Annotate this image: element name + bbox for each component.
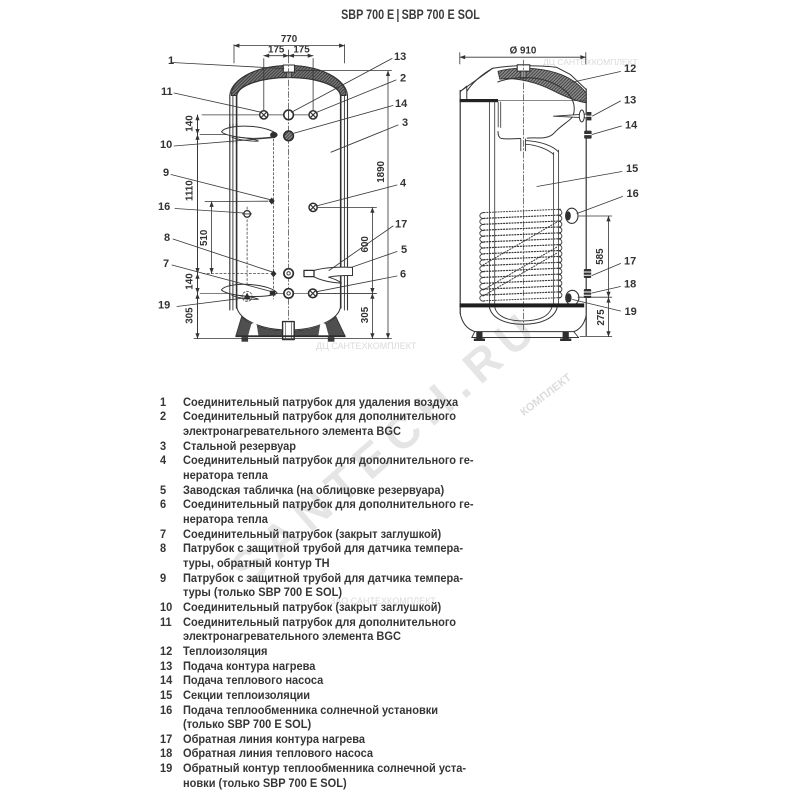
svg-text:175: 175 bbox=[268, 45, 285, 56]
svg-text:13: 13 bbox=[394, 51, 406, 63]
svg-text:1110: 1110 bbox=[184, 180, 195, 201]
svg-text:13: 13 bbox=[624, 95, 636, 107]
svg-text:1890: 1890 bbox=[376, 160, 387, 182]
svg-text:17: 17 bbox=[395, 219, 407, 231]
svg-text:Ø 910: Ø 910 bbox=[510, 45, 537, 56]
svg-text:305: 305 bbox=[360, 306, 371, 323]
svg-text:7: 7 bbox=[163, 258, 169, 270]
svg-text:11: 11 bbox=[161, 86, 173, 98]
svg-text:19: 19 bbox=[158, 300, 170, 312]
svg-text:770: 770 bbox=[281, 34, 298, 45]
svg-text:585: 585 bbox=[595, 248, 606, 265]
svg-text:1: 1 bbox=[168, 55, 174, 67]
svg-text:275: 275 bbox=[596, 309, 607, 326]
svg-text:510: 510 bbox=[199, 229, 210, 246]
svg-text:9: 9 bbox=[163, 167, 169, 179]
svg-text:15: 15 bbox=[626, 163, 638, 175]
svg-text:14: 14 bbox=[625, 120, 638, 132]
svg-text:3: 3 bbox=[402, 117, 408, 129]
svg-text:305: 305 bbox=[185, 307, 196, 324]
svg-text:12: 12 bbox=[624, 63, 636, 75]
svg-text:175: 175 bbox=[293, 45, 310, 56]
svg-text:5: 5 bbox=[401, 244, 407, 256]
svg-text:10: 10 bbox=[160, 139, 172, 151]
svg-text:6: 6 bbox=[400, 269, 406, 281]
svg-text:14: 14 bbox=[395, 98, 408, 110]
svg-text:4: 4 bbox=[400, 178, 407, 190]
svg-text:18: 18 bbox=[624, 279, 636, 291]
svg-text:600: 600 bbox=[360, 236, 371, 253]
svg-text:2: 2 bbox=[400, 73, 406, 85]
svg-text:140: 140 bbox=[185, 115, 196, 132]
svg-text:16: 16 bbox=[158, 201, 170, 213]
svg-text:140: 140 bbox=[185, 273, 196, 290]
svg-text:16: 16 bbox=[627, 188, 639, 200]
svg-text:17: 17 bbox=[624, 256, 636, 268]
svg-text:8: 8 bbox=[164, 232, 170, 244]
svg-text:19: 19 bbox=[625, 306, 637, 318]
